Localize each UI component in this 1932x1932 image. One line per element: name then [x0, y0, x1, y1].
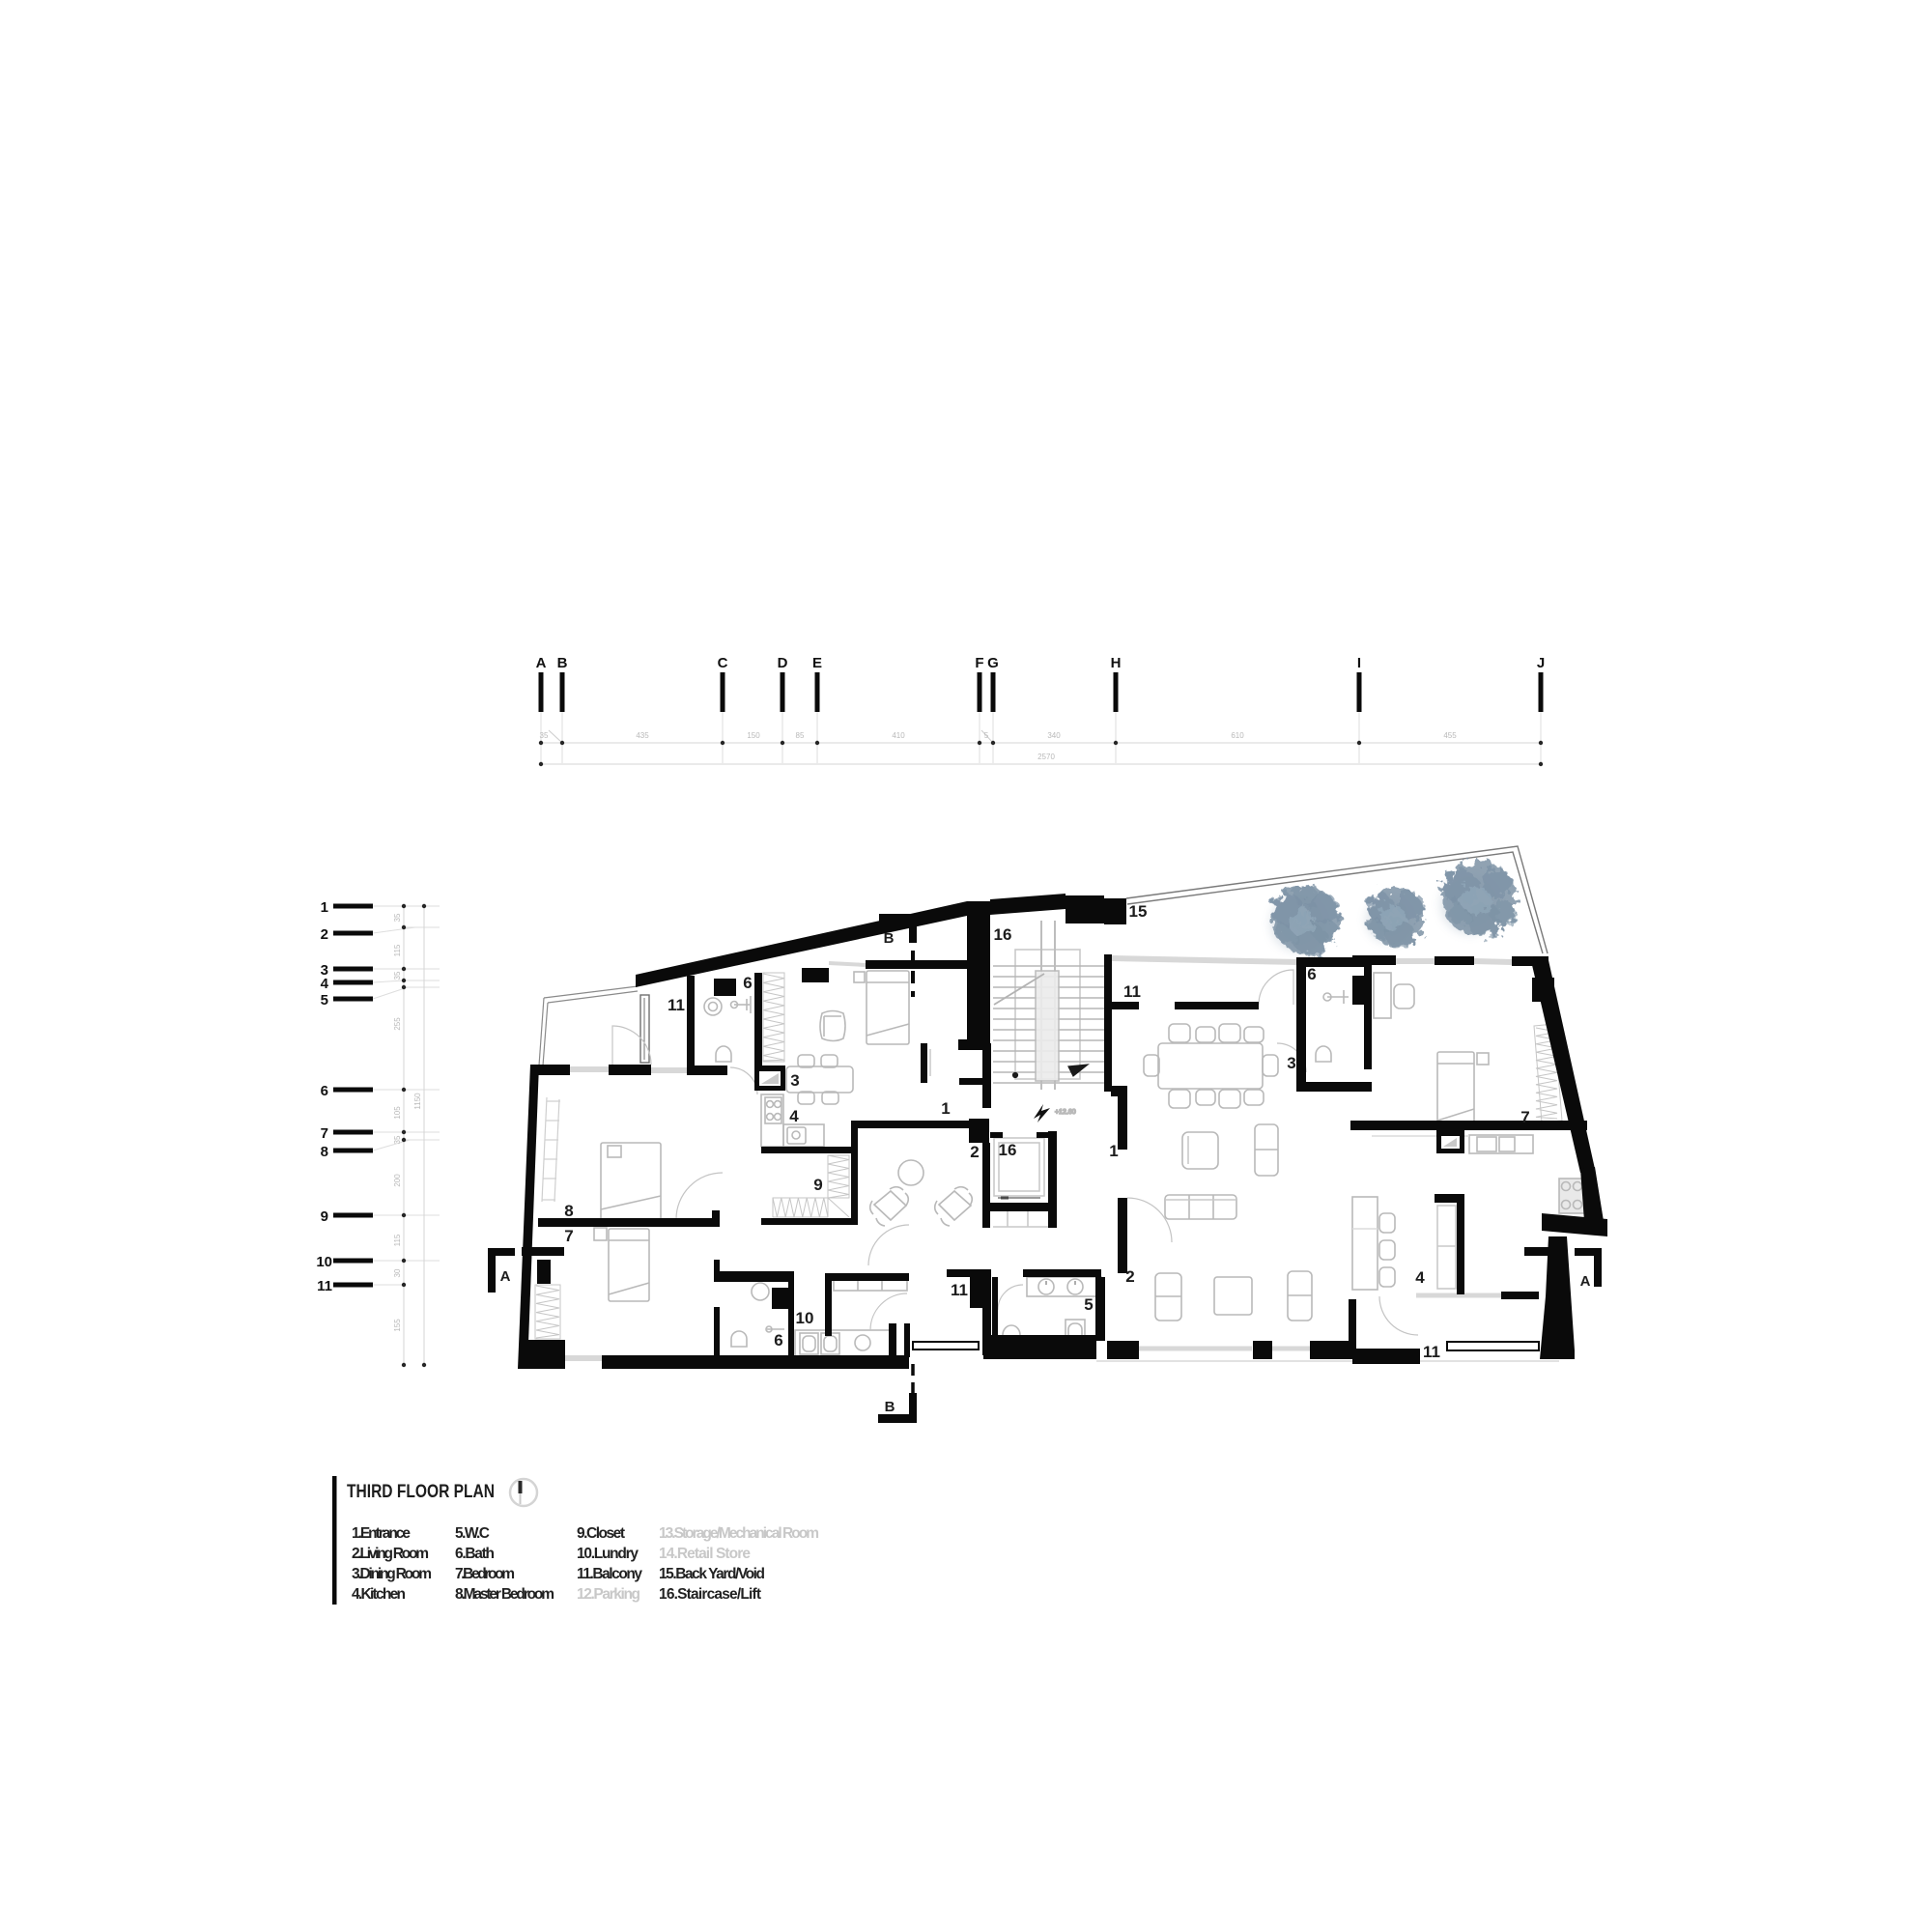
svg-text:4: 4	[321, 976, 329, 992]
svg-text:150: 150	[747, 731, 760, 740]
svg-text:410: 410	[892, 731, 905, 740]
svg-text:3.Dining Room: 3.Dining Room	[352, 1566, 432, 1582]
svg-text:1: 1	[1109, 1142, 1118, 1160]
svg-text:105: 105	[393, 1106, 402, 1120]
svg-text:1: 1	[941, 1099, 950, 1118]
svg-text:6: 6	[1307, 965, 1316, 983]
svg-text:2570: 2570	[1037, 753, 1055, 761]
svg-text:3: 3	[790, 1071, 799, 1090]
svg-text:35: 35	[540, 731, 549, 740]
svg-text:2: 2	[970, 1143, 979, 1161]
svg-text:5: 5	[984, 731, 989, 740]
svg-text:5: 5	[321, 992, 328, 1009]
svg-text:340: 340	[1047, 731, 1061, 740]
svg-text:9: 9	[321, 1208, 328, 1225]
svg-text:4.Kitchen: 4.Kitchen	[352, 1586, 406, 1603]
svg-text:J: J	[1537, 655, 1545, 671]
svg-text:6: 6	[774, 1331, 782, 1350]
svg-text:9: 9	[813, 1176, 822, 1194]
svg-text:30: 30	[393, 1268, 402, 1277]
svg-text:B: B	[557, 655, 568, 671]
svg-text:14.Retail Store: 14.Retail Store	[659, 1546, 751, 1562]
svg-text:255: 255	[393, 1017, 402, 1031]
svg-text:8.Master Bedroom: 8.Master Bedroom	[455, 1586, 554, 1603]
svg-text:7: 7	[1520, 1108, 1529, 1126]
svg-text:B: B	[884, 930, 895, 947]
svg-text:35: 35	[393, 913, 402, 922]
svg-text:1: 1	[321, 899, 328, 916]
svg-text:610: 610	[1231, 731, 1244, 740]
svg-text:6.Bath: 6.Bath	[455, 1546, 495, 1562]
svg-text:E: E	[812, 655, 822, 671]
svg-text:10.Lundry: 10.Lundry	[577, 1546, 639, 1562]
svg-text:455: 455	[1443, 731, 1457, 740]
svg-text:8: 8	[321, 1144, 328, 1160]
svg-text:10: 10	[316, 1254, 332, 1270]
svg-text:155: 155	[393, 1319, 402, 1332]
svg-text:9.Closet: 9.Closet	[577, 1525, 625, 1542]
svg-text:11: 11	[1423, 1343, 1440, 1361]
svg-text:15.Back Yard/Void: 15.Back Yard/Void	[659, 1566, 765, 1582]
svg-text:16: 16	[994, 925, 1012, 944]
svg-text:A: A	[536, 655, 547, 671]
svg-text:THIRD FLOOR PLAN: THIRD FLOOR PLAN	[347, 1482, 495, 1502]
svg-text:16: 16	[999, 1141, 1017, 1159]
svg-text:5.W.C: 5.W.C	[455, 1525, 490, 1542]
svg-text:G: G	[987, 655, 999, 671]
svg-text:4: 4	[1415, 1268, 1425, 1287]
svg-text:115: 115	[393, 944, 402, 956]
svg-text:11: 11	[1123, 982, 1141, 1001]
svg-text:B: B	[885, 1399, 895, 1415]
svg-text:1.Entrance: 1.Entrance	[352, 1525, 411, 1542]
svg-text:7.Bedroom: 7.Bedroom	[455, 1566, 515, 1582]
svg-text:3: 3	[1287, 1054, 1295, 1072]
svg-text:12.Parking: 12.Parking	[577, 1586, 640, 1603]
svg-text:6: 6	[743, 974, 752, 992]
svg-text:C: C	[718, 655, 728, 671]
svg-text:6: 6	[321, 1083, 328, 1099]
svg-text:435: 435	[636, 731, 649, 740]
svg-text:10: 10	[796, 1309, 814, 1327]
svg-text:7: 7	[321, 1125, 328, 1142]
svg-text:13.Storage/Mechanical Room: 13.Storage/Mechanical Room	[659, 1525, 819, 1542]
svg-text:16.Staircase/Lift: 16.Staircase/Lift	[659, 1586, 761, 1603]
svg-text:7: 7	[564, 1227, 573, 1245]
svg-text:2: 2	[321, 926, 328, 943]
svg-text:5: 5	[1084, 1295, 1093, 1314]
svg-text:+12.60: +12.60	[1055, 1109, 1076, 1116]
svg-text:11: 11	[317, 1278, 332, 1294]
svg-text:15: 15	[1129, 902, 1148, 921]
svg-text:115: 115	[393, 1234, 402, 1246]
svg-text:35: 35	[393, 971, 402, 980]
svg-text:11.Balcony: 11.Balcony	[577, 1566, 642, 1582]
svg-text:I: I	[1357, 655, 1361, 671]
svg-text:200: 200	[393, 1174, 402, 1187]
svg-text:8: 8	[564, 1202, 573, 1220]
svg-text:1150: 1150	[413, 1093, 422, 1110]
svg-text:2: 2	[1125, 1267, 1134, 1286]
svg-text:A: A	[1580, 1273, 1591, 1290]
svg-text:4: 4	[789, 1107, 799, 1125]
svg-text:D: D	[778, 655, 788, 671]
svg-text:2.Living Room: 2.Living Room	[352, 1546, 429, 1562]
svg-text:A: A	[500, 1268, 511, 1285]
svg-text:85: 85	[796, 731, 805, 740]
svg-text:H: H	[1111, 655, 1122, 671]
svg-text:35: 35	[393, 1135, 402, 1144]
svg-text:11: 11	[668, 996, 685, 1014]
svg-text:11: 11	[951, 1281, 968, 1299]
svg-text:F: F	[975, 655, 983, 671]
